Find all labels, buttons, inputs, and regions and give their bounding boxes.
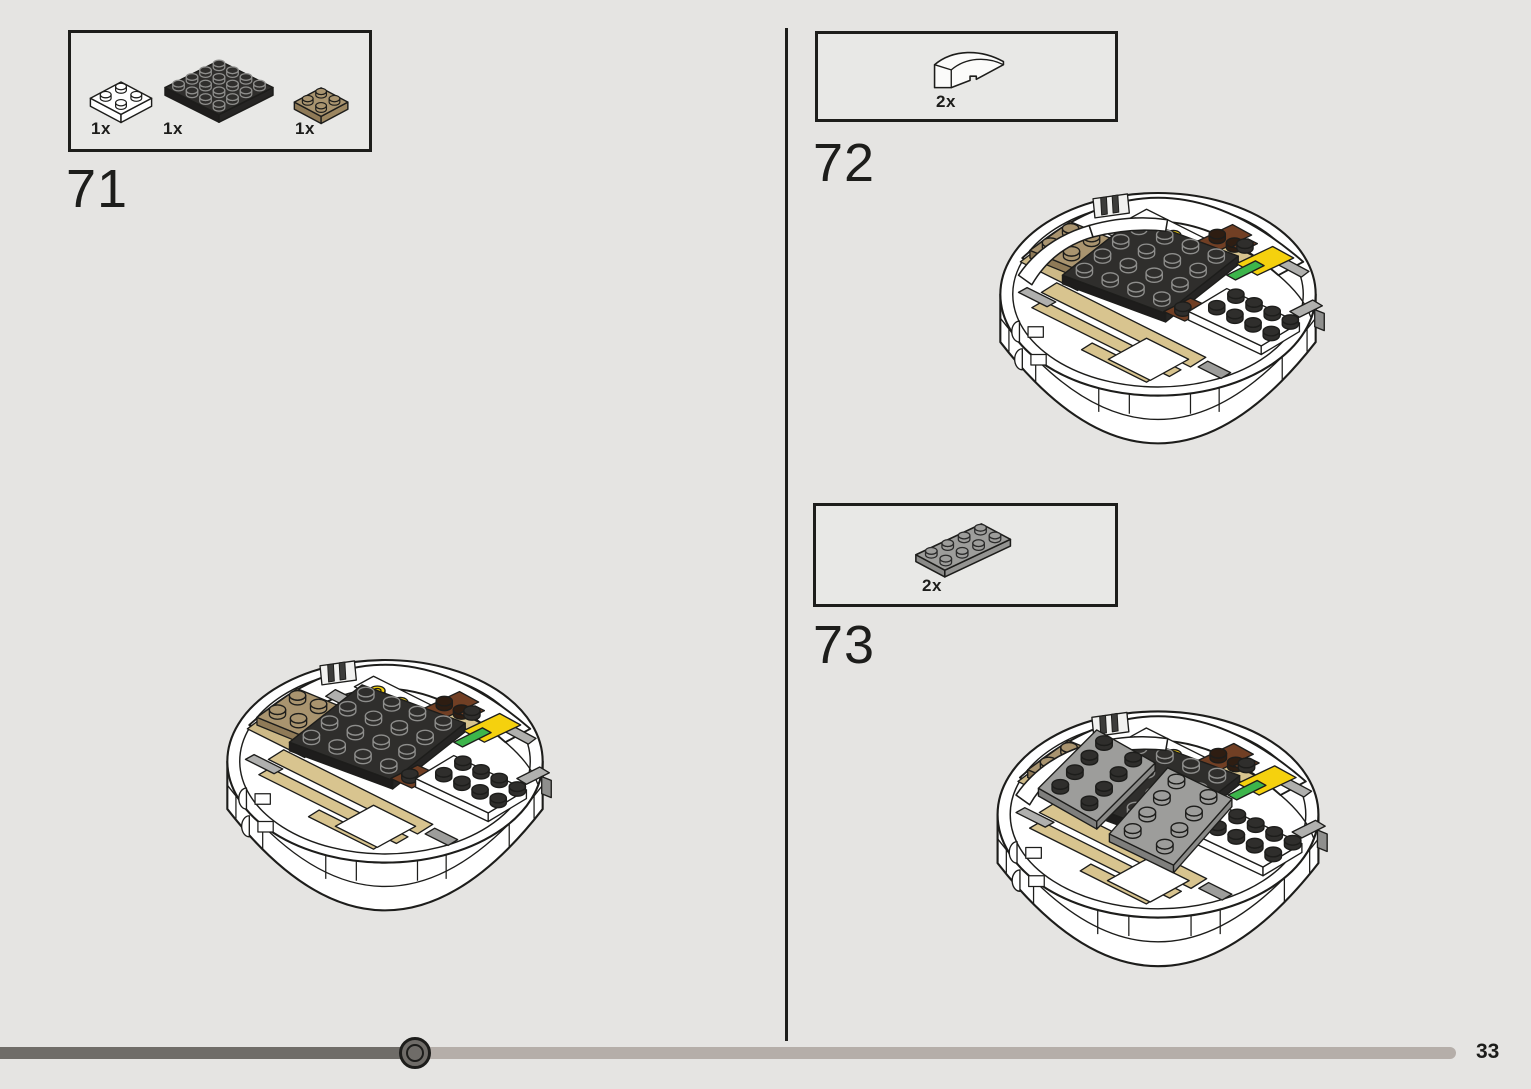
column-divider [785,28,788,1041]
part-qty-label: 2x [922,576,942,596]
model-step-71 [213,635,557,922]
step-number-72: 72 [813,136,875,190]
part-plate-2x4-gray-icon [912,516,1022,580]
part-qty-label: 1x [163,119,183,139]
part-slope-curved-white-icon [928,48,1010,96]
parts-box-step-73: 2x [813,503,1118,607]
parts-box-step-71: 1x 1x 1x [68,30,372,152]
part-qty-label: 1x [295,119,315,139]
model-step-73 [983,686,1333,978]
progress-bar-filled [0,1047,418,1059]
step-number-71: 71 [66,162,128,216]
part-plate-4x4-black-icon [161,49,277,128]
step-number-73: 73 [813,618,875,672]
model-step-72 [986,168,1330,455]
part-qty-label: 2x [936,92,956,112]
parts-box-step-72: 2x [815,31,1118,122]
progress-knob[interactable] [399,1037,431,1069]
page-number: 33 [1476,1040,1499,1064]
progress-bar-remaining [418,1047,1456,1059]
part-qty-label: 1x [91,119,111,139]
